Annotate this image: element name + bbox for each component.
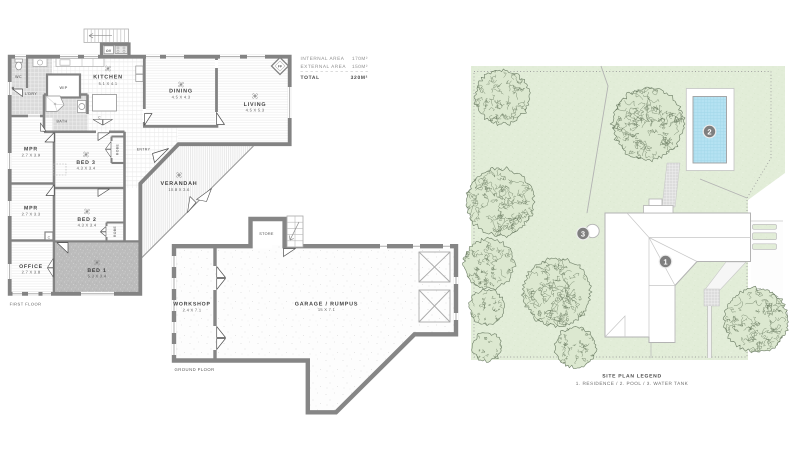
svg-text:WC: WC (15, 75, 22, 79)
svg-text:C: C (48, 235, 51, 239)
svg-text:4.5 X 4.3: 4.5 X 4.3 (172, 94, 191, 99)
svg-text:EXTERNAL AREA: EXTERNAL AREA (301, 64, 347, 69)
svg-text:2.7 X 3.9: 2.7 X 3.9 (22, 152, 41, 157)
svg-text:4.5 X 5.3: 4.5 X 5.3 (246, 108, 265, 113)
svg-text:320M²: 320M² (351, 75, 368, 81)
svg-text:3: 3 (581, 229, 585, 238)
svg-text:SITE PLAN LEGEND: SITE PLAN LEGEND (602, 374, 662, 380)
svg-text:BATH: BATH (56, 120, 67, 124)
svg-text:2.7 X 3.3: 2.7 X 3.3 (22, 211, 41, 216)
svg-text:170M²: 170M² (352, 56, 368, 61)
svg-text:10.8 X 3.6: 10.8 X 3.6 (168, 187, 190, 192)
svg-text:GROUND FLOOR: GROUND FLOOR (175, 367, 215, 372)
svg-text:ENTRY: ENTRY (137, 148, 151, 152)
svg-text:L'DRY: L'DRY (25, 92, 37, 96)
svg-text:ROBE: ROBE (113, 226, 117, 238)
svg-text:FIRST FLOOR: FIRST FLOOR (10, 301, 42, 306)
svg-text:C: C (98, 115, 101, 119)
svg-text:15 X 7.1: 15 X 7.1 (318, 307, 336, 312)
svg-text:STORE: STORE (259, 232, 274, 236)
svg-text:2.4 X 7.1: 2.4 X 7.1 (183, 307, 202, 312)
svg-text:2.7 X 3.8: 2.7 X 3.8 (22, 270, 41, 275)
svg-text:TOTAL: TOTAL (301, 75, 320, 81)
svg-text:2: 2 (707, 127, 711, 136)
svg-text:1. RESIDENCE / 2. POOL / 3. WA: 1. RESIDENCE / 2. POOL / 3. WATER TANK (576, 381, 689, 386)
svg-text:4.3 X 3.4: 4.3 X 3.4 (78, 223, 97, 228)
svg-text:KITCHEN: KITCHEN (93, 75, 123, 81)
svg-text:4.3 X 3.4: 4.3 X 3.4 (77, 166, 96, 171)
svg-text:OV: OV (106, 49, 112, 53)
svg-text:ROBE: ROBE (116, 144, 120, 156)
svg-text:150M²: 150M² (352, 64, 368, 69)
svg-text:INTERNAL AREA: INTERNAL AREA (301, 56, 345, 61)
svg-text:5.3 X 3.4: 5.3 X 3.4 (88, 274, 107, 279)
svg-text:5.1 X 4.1: 5.1 X 4.1 (99, 81, 118, 86)
svg-text:WIP: WIP (59, 86, 67, 90)
